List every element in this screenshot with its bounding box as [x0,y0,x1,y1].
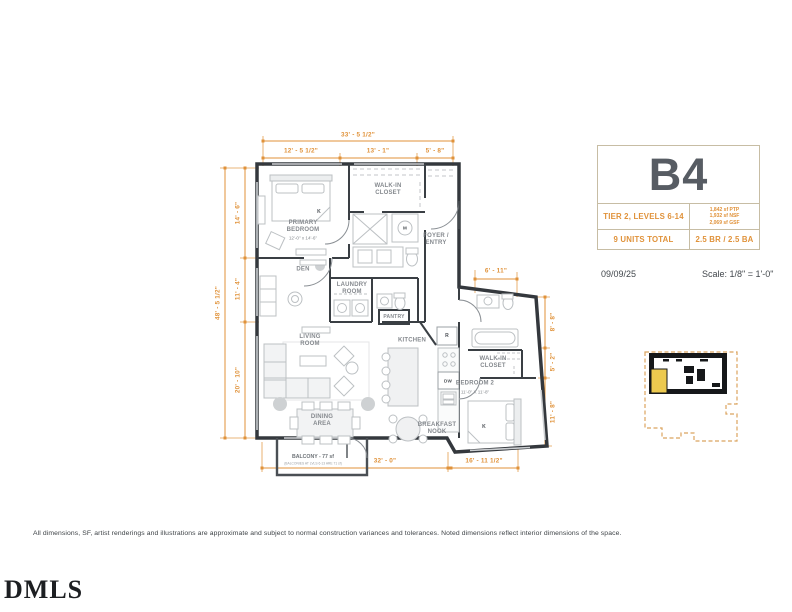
unit-count: 9 UNITS TOTAL [614,235,674,244]
dim-left-c: 20' - 10" [235,367,242,393]
dim-top-c: 5' - 8" [426,148,445,155]
furniture [258,169,521,445]
room-label-foyer-entry: FOYER / ENTRY [423,233,448,247]
room-label-pantry: PANTRY [383,314,404,320]
dim-right-b: 5' - 2" [550,353,557,372]
dim-right-c: 11' - 8" [550,401,557,423]
dim-top-a: 12' - 5 1/2" [284,148,318,155]
fixture-label-fridge: R [445,333,449,339]
room-label-living: LIVING ROOM [299,334,320,348]
dim-wing-top: 6' - 11" [485,268,507,275]
plan-date: 09/09/25 [601,269,636,279]
fixture-label-mech: M [403,225,407,231]
dim-top-overall: 33' - 5 1/2" [341,132,375,139]
room-label-balcony-note: (BALCONIES AT LVLS 6-13 ARE 71 sf) [284,462,342,465]
key-plan [645,352,737,441]
dim-left-b: 11' - 4" [235,278,242,300]
room-label-kitchen: KITCHEN [398,337,426,344]
dim-top-b: 13' - 1" [367,148,390,155]
room-label-primary-bedroom: PRIMARY BEDROOM [287,220,320,234]
room-label-walk-in-closet-2: WALK-IN CLOSET [479,356,506,370]
unit-bed-bath: 2.5 BR / 2.5 BA [695,235,753,244]
unit-info-card: B4 TIER 2, LEVELS 6-14 1,842 sf PTP 1,93… [597,145,760,250]
room-label-balcony: BALCONY - 77 sf [292,454,334,460]
room-label-bedroom2: BEDROOM 2 [456,380,494,387]
fixture-label-king-bed-2: K [482,424,486,430]
floor-plan-sheet: 33' - 5 1/2" 12' - 5 1/2" 13' - 1" 5' - … [0,0,792,612]
key-plan-unit-highlight [651,369,667,393]
dim-left-overall: 48' - 5 1/2" [215,286,222,320]
plan-scale: Scale: 1/8" = 1'-0" [702,269,773,279]
unit-areas: 1,842 sf PTP 1,932 sf NSF 2,069 sf GSF [690,204,759,229]
unit-area-gsf: 2,069 sf GSF [709,220,739,226]
dim-bottom-b: 16' - 11 1/2" [465,458,502,465]
room-label-dining: DINING AREA [311,414,333,428]
room-label-laundry: LAUNDRY ROOM [337,282,368,296]
fixture-label-king-bed-primary: K [317,209,321,215]
floor-plan-drawing [0,0,792,612]
fixture-label-dishwasher: DW [444,378,452,384]
dim-bottom-a: 32' - 0" [374,458,397,465]
room-label-walk-in-closet-1: WALK-IN CLOSET [374,183,401,197]
room-dims-primary-bedroom: 12'-0" x 14'-6" [289,235,317,241]
dmls-logo: DMLS [4,575,83,605]
disclaimer-text: All dimensions, SF, artist renderings an… [33,530,733,537]
room-label-breakfast-nook: BREAKFAST NOOK [418,422,456,436]
dim-right-a: 8' - 8" [550,313,557,332]
unit-name: B4 [598,146,759,204]
unit-tier-levels: TIER 2, LEVELS 6-14 [603,212,684,221]
dim-left-a: 14' - 6" [235,202,242,225]
room-label-den: DEN [296,266,309,273]
room-dims-bedroom2: 11'-0" X 11'-8" [461,389,489,395]
